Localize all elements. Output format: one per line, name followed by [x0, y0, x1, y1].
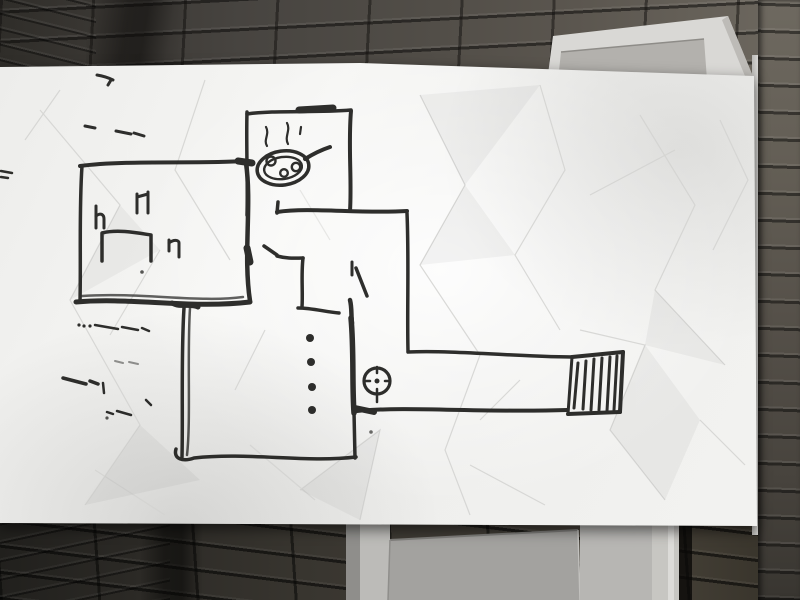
ink-dot-3 [308, 406, 316, 414]
hand-drawn-map [0, 0, 800, 600]
ink-dot-8 [82, 324, 85, 327]
ink-corridor-east-top [408, 352, 572, 357]
ink-stairs-top [572, 352, 623, 357]
ink-hall-right-upper [351, 318, 354, 413]
ink-steam [266, 123, 301, 146]
ink-hall-bottom [175, 449, 356, 460]
ink-chair-1 [96, 206, 104, 228]
ink-mark-top-dashes [85, 126, 144, 136]
ink-pan-food-3 [292, 163, 300, 171]
game-viewport [0, 0, 800, 600]
ink-hall-right-lower [354, 412, 355, 458]
ink-kitchen-bottom [277, 210, 407, 212]
ink-chair-3 [169, 240, 179, 257]
ink-doorway-swing [356, 268, 367, 296]
ink-corridor-east-bottom [357, 409, 567, 411]
ink-hall-right-upper-blob [350, 300, 352, 323]
ink-connector-right [302, 258, 303, 307]
ink-left-room-top [80, 161, 246, 166]
ink-stairs-bottom [568, 412, 620, 414]
ink-mark-dash-faint [115, 361, 138, 364]
ink-dot-10 [105, 416, 108, 419]
ink-dot-9 [88, 324, 91, 327]
ink-connector-bottom [298, 308, 339, 313]
ink-left-room-left [80, 166, 82, 302]
ink-hall-left-wall-2 [187, 308, 190, 455]
ink-dot-2 [308, 383, 316, 391]
ink-connector-top [277, 256, 303, 258]
ink-dot-1 [307, 358, 315, 366]
ink-kitchen-right [350, 111, 351, 211]
ink-dot-5 [140, 270, 144, 274]
ink-left-room-bottom [76, 301, 250, 305]
ink-kitchen-top-blob [299, 108, 333, 110]
ink-mark-top-angle [97, 75, 113, 85]
ink-stairs-hatching [574, 356, 617, 411]
ink-mark-tick [146, 400, 151, 405]
ink-dot-7 [77, 323, 80, 326]
ink-mark-left-edge [1, 171, 12, 178]
ink-corridor-east-vertical [407, 213, 408, 351]
map-paper[interactable] [0, 0, 800, 600]
ink-pan-handle [305, 147, 330, 159]
ink-kitchen-left [247, 112, 248, 215]
ink-mark-dash-row-2 [63, 378, 98, 384]
ink-left-room-bottom-2 [82, 295, 243, 299]
map-paper-wrap [0, 0, 800, 600]
ink-dot-0 [306, 334, 314, 342]
ink-chair-2 [137, 192, 148, 213]
ink-hall-left-wall [182, 308, 184, 457]
ink-wall-blob-right-mid [247, 248, 250, 262]
ink-stairs-left [568, 357, 572, 414]
ink-dot-4 [375, 379, 380, 384]
ink-hall-left-junction-blob [172, 303, 198, 307]
ink-mark-dash-row-1 [95, 325, 149, 331]
ink-pan-food-2 [280, 169, 288, 177]
ink-dot-6 [369, 430, 373, 434]
ink-mark-tiny-vertical [103, 383, 104, 393]
ink-mark-dash-row-3 [107, 411, 131, 415]
ink-corridor-east-bottom-blob [355, 408, 374, 412]
ink-wall-blob-top-junction [238, 161, 252, 163]
ink-connector-diagonal [264, 246, 277, 255]
